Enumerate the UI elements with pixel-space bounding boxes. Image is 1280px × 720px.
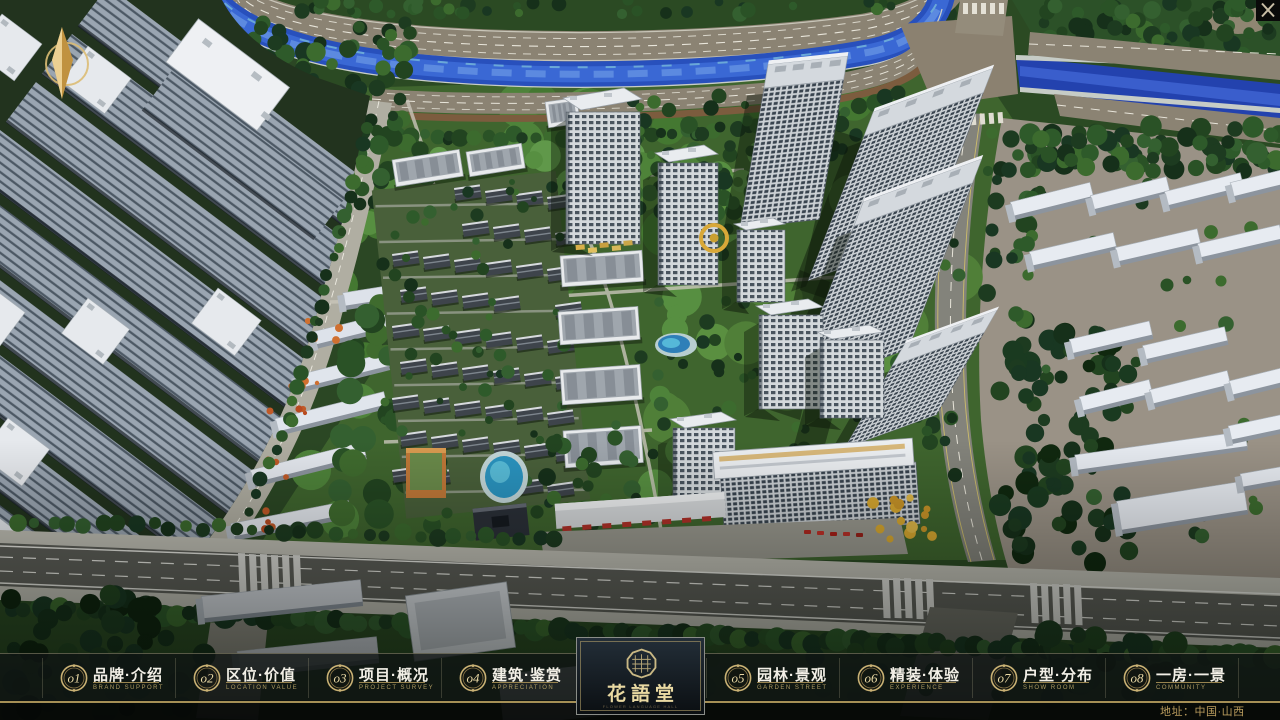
svg-text:o7: o7	[998, 671, 1012, 686]
svg-text:o2: o2	[201, 671, 215, 686]
svg-text:o6: o6	[865, 671, 879, 686]
svg-text:o4: o4	[467, 671, 481, 686]
svg-text:o5: o5	[732, 671, 746, 686]
svg-text:o1: o1	[68, 671, 81, 686]
svg-text:o3: o3	[334, 671, 348, 686]
svg-text:o8: o8	[1131, 671, 1145, 686]
